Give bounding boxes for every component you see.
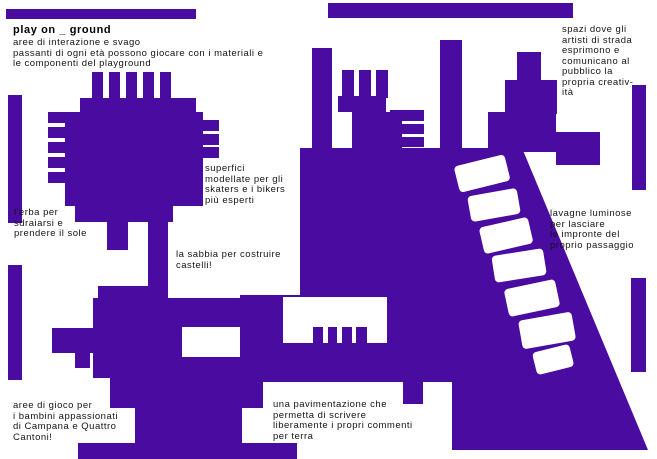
annotation-sabbia: la sabbia per costruire castelli! (176, 250, 316, 271)
top-left-bar (6, 9, 196, 19)
bottom-bar (78, 443, 297, 459)
chip-tooth (92, 72, 103, 102)
playground-diagram: play on _ ground aree di interazione e s… (0, 0, 657, 459)
cross-block (505, 80, 557, 114)
left-edge-bar-upper (8, 95, 22, 223)
right-edge-bar-lower (631, 278, 646, 372)
chip-tooth (143, 72, 154, 102)
comb-tooth (356, 327, 367, 343)
chip-tooth (390, 110, 424, 121)
chip-tooth (376, 70, 388, 98)
left-edge-bar-lower (8, 265, 22, 380)
middle-chip-shape (312, 48, 424, 150)
cross-step-right (556, 132, 600, 165)
center-mass-upper (300, 148, 462, 382)
trunk-tooth-right (242, 378, 263, 408)
chip-tooth (48, 172, 96, 183)
annotation-intro: aree di interazione e svago passanti di … (13, 38, 323, 70)
mass-arm-tooth (75, 353, 90, 368)
chip-upper-block (80, 98, 196, 114)
annotation-lavagne: lavagne luminose per lasciare le impront… (550, 209, 655, 251)
chip-tooth (48, 142, 96, 153)
right-arm (440, 40, 462, 152)
chip-stem (148, 206, 168, 302)
chip-tooth (48, 157, 96, 168)
annotation-superfici: superfici modellate per gli skaters e i … (205, 164, 315, 206)
comb-tooth (313, 327, 323, 343)
chip-tooth (180, 120, 219, 131)
mass-white-hole (182, 327, 240, 357)
chip-tooth (342, 70, 354, 98)
chip-tooth (390, 137, 424, 147)
mass-left-arm (52, 328, 93, 353)
chip-tooth (48, 127, 96, 138)
center-right-column (452, 382, 462, 450)
chip-tooth (48, 112, 96, 123)
annotation-spazi: spazi dove gli artisti di strada esprimo… (562, 25, 656, 99)
annotation-pavimentazione: una pavimentazione che permetta di scriv… (273, 400, 453, 442)
chip-tooth (160, 72, 171, 102)
comb-tooth (342, 327, 352, 343)
chip-tooth (180, 147, 219, 158)
chip-block (338, 96, 386, 112)
chip-tooth (109, 72, 120, 102)
cross-tooth (517, 52, 541, 82)
chip-tooth (359, 70, 371, 98)
right-edge-bar-upper (632, 85, 646, 190)
chip-tooth (126, 72, 137, 102)
cross-base (488, 112, 556, 152)
annotation-erba: l'erba per sdraiarsi e prendere il sole (14, 208, 124, 240)
chip-tooth (180, 134, 219, 145)
annotation-gioco: aree di gioco per i bambini appassionati… (13, 401, 163, 443)
comb-tooth (328, 327, 337, 343)
top-band (328, 3, 573, 18)
chip-tooth (390, 124, 424, 134)
page-title: play on _ ground (13, 24, 111, 36)
